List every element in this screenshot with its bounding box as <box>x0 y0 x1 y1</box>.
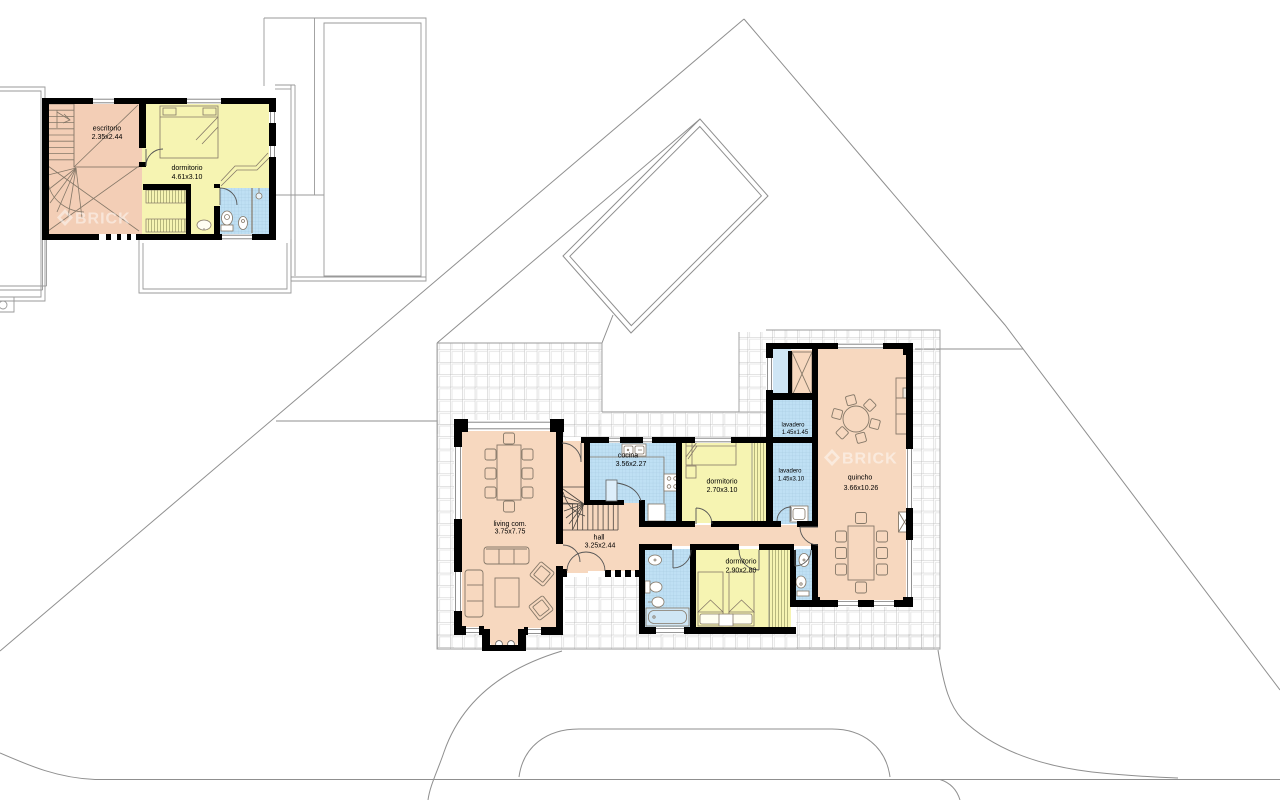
svg-text:1.45x1.45: 1.45x1.45 <box>782 430 809 436</box>
svg-text:lavadero: lavadero <box>778 469 802 475</box>
svg-text:3.56x2.27: 3.56x2.27 <box>616 461 647 468</box>
svg-text:dormitorio: dormitorio <box>171 165 202 172</box>
svg-text:cocina: cocina <box>618 453 638 460</box>
svg-text:BRICK: BRICK <box>842 451 898 468</box>
svg-text:1.45x3.10: 1.45x3.10 <box>778 477 805 483</box>
svg-text:living com.: living com. <box>493 521 526 528</box>
svg-text:BRICK: BRICK <box>75 211 131 228</box>
svg-text:2.90x2.80: 2.90x2.80 <box>726 568 757 575</box>
svg-text:lavadero: lavadero <box>781 423 805 429</box>
svg-text:escritorio: escritorio <box>93 126 122 133</box>
svg-text:2.70x3.10: 2.70x3.10 <box>707 487 738 494</box>
svg-text:3.25x2.44: 3.25x2.44 <box>585 543 616 550</box>
svg-text:dormitorio: dormitorio <box>706 479 737 486</box>
svg-text:hall: hall <box>594 535 605 542</box>
svg-text:4.61x3.10: 4.61x3.10 <box>172 174 203 181</box>
svg-text:quincho: quincho <box>848 475 873 482</box>
svg-text:dormitorio: dormitorio <box>725 559 756 566</box>
svg-text:3.75x7.75: 3.75x7.75 <box>495 529 526 536</box>
svg-text:3.66x10.26: 3.66x10.26 <box>844 485 879 492</box>
svg-text:2.35x2.44: 2.35x2.44 <box>92 134 123 141</box>
